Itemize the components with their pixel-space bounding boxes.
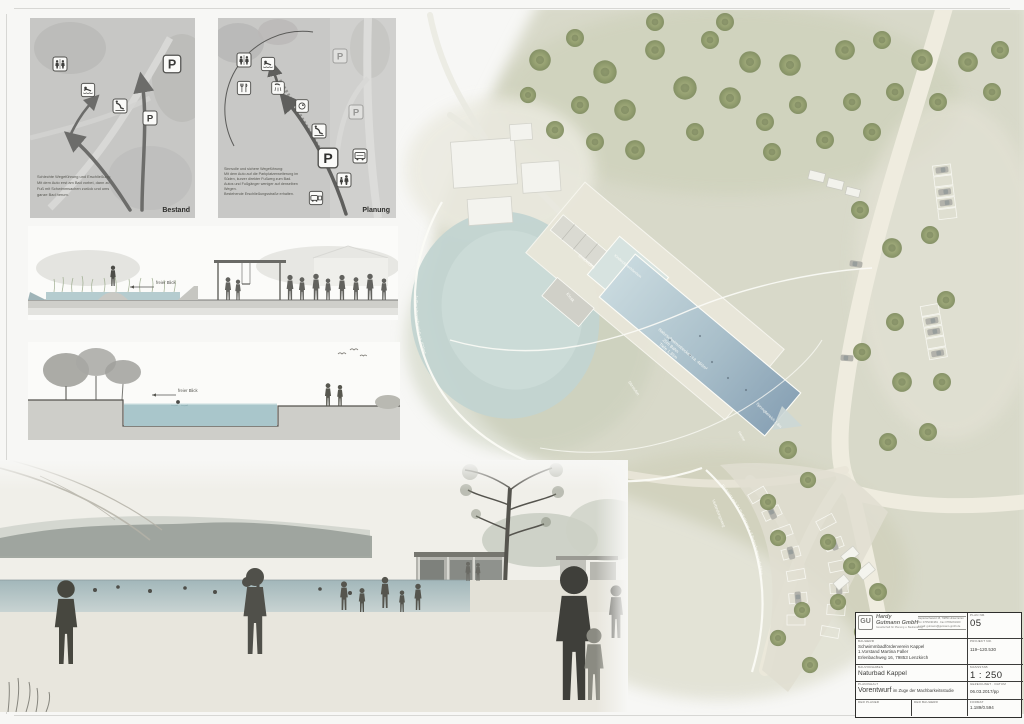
- icon-swimmer-sign: [261, 57, 274, 70]
- svg-text:Süden, kurzer direkter Fußweg: Süden, kurzer direkter Fußweg zum Bad.: [224, 177, 291, 181]
- icon-wc-sign: [53, 57, 67, 71]
- gezeichnet-cell: GEZEICHNET · DATUM 06.03.2017/pp: [968, 682, 1023, 700]
- firm-contact: Heptenschwand 15, 79856 Hinterzarten Tel…: [918, 616, 966, 630]
- section-drawing-2: freier Blick: [28, 342, 400, 440]
- icon-parking-sign: P: [163, 55, 181, 73]
- scale-value: 1 : 250: [970, 670, 1023, 682]
- beach-deck: [0, 612, 628, 712]
- svg-text:P: P: [168, 58, 176, 72]
- icon-slide-sign: [312, 124, 326, 138]
- icon-bus-sign: [353, 149, 367, 163]
- icon-slide-sign: [113, 99, 127, 113]
- icon-shower-sign: [272, 82, 285, 95]
- svg-text:freier Blick: freier Blick: [156, 280, 176, 285]
- icon-restaurant-sign: [237, 81, 250, 94]
- drawn-date: 06.03.2017/pp: [970, 689, 1023, 695]
- svg-text:Wegen.: Wegen.: [224, 187, 237, 191]
- bauherr-signature-cell: DER BAUHERR: [912, 700, 968, 716]
- format-cell: FORMAT 1.189/0.594: [968, 700, 1023, 716]
- plan-nr-cell: PLAN NR. 05: [968, 613, 1023, 639]
- svg-text:Mit dem Auto auf die Parkplatz: Mit dem Auto auf die Parkplatzerweiterun…: [224, 172, 298, 176]
- icon-pedestrians-sign: [337, 173, 351, 187]
- plan-sheet: { "colors": { "water": "#b9cedb", "tree_…: [0, 0, 1024, 724]
- svg-text:Schlechte Wegeführung und Ersc: Schlechte Wegeführung und Erschließung:: [37, 174, 111, 179]
- map-bestand: P P Schlechte Wegeführung und Erschließu…: [30, 18, 195, 218]
- title-block: GU Hardy Gutmann GmbH Gesellschaft für P…: [855, 612, 1022, 718]
- icon-play-sign: [296, 100, 309, 113]
- plan-content-rest: im Zuge der Machbarkeitsstudie: [893, 688, 954, 693]
- project-number: 119–120.530: [970, 647, 1023, 653]
- planer-signature-cell: DER PLANER: [856, 700, 912, 716]
- section-drawing-1: freier Blick: [28, 226, 398, 320]
- svg-text:freier Blick: freier Blick: [178, 388, 198, 393]
- svg-text:Fuß mit Schwimmsachen zurück u: Fuß mit Schwimmsachen zurück und ums: [37, 186, 109, 191]
- icon-car-sign: [309, 191, 322, 204]
- svg-text:Sinnvolle und sichere Wegeführ: Sinnvolle und sichere Wegeführung:: [224, 167, 283, 171]
- icon-parking-sign-main: P: [318, 148, 338, 168]
- svg-text:P: P: [323, 150, 332, 166]
- map-planung-title: Planung: [362, 207, 390, 214]
- svg-text:ganze Bad herum.: ganze Bad herum.: [37, 192, 69, 197]
- projekt-nr-cell: PROJEKT NR. 119–120.530: [968, 639, 1023, 665]
- svg-text:P: P: [337, 51, 344, 62]
- bauvorhaben-cell: BAUVORHABEN Naturbad Kappel: [856, 665, 968, 682]
- svg-text:Autos und Fußgänger weniger au: Autos und Fußgänger weniger auf denselbe…: [224, 182, 298, 186]
- map-planung-caption: Sinnvolle und sichere Wegeführung: Mit d…: [224, 167, 298, 196]
- plan-content-main: Vorentwurf: [858, 687, 891, 694]
- icon-parking-ghost-2: P: [349, 105, 363, 119]
- map-planung: P P P Sinnvolle und sichere Wegeführung:…: [218, 18, 396, 218]
- project-title: Naturbad Kappel: [858, 670, 967, 678]
- icon-parking-ghost-1: P: [333, 49, 347, 63]
- perspective-rendering: [0, 460, 628, 712]
- icon-swimmer-sign: [81, 83, 94, 96]
- svg-text:P: P: [353, 107, 360, 118]
- map-bestand-title: Bestand: [162, 207, 190, 214]
- plan-number: 05: [970, 618, 1023, 630]
- bauherr-cell: BAUHERR Schwimmbadförderverein Kappel 1.…: [856, 639, 968, 665]
- pool-water: [124, 404, 277, 426]
- massstab-cell: MASSSTAB 1 : 250: [968, 665, 1023, 682]
- svg-text:Bestehende Erschließungsstraße: Bestehende Erschließungsstraße erhalten.: [224, 192, 294, 196]
- planinhalt-cell: PLANINHALT Vorentwurf im Zuge der Machba…: [856, 682, 968, 700]
- firm-logo: GU: [858, 615, 873, 630]
- format-value: 1.189/0.594: [970, 705, 1023, 711]
- frame-top: [14, 8, 1010, 9]
- icon-parking-sign-2: P: [143, 111, 157, 125]
- firm-cell: GU Hardy Gutmann GmbH Gesellschaft für P…: [856, 613, 968, 639]
- svg-text:Mit dem Auto erst am Bad vorbe: Mit dem Auto erst am Bad vorbei, dann zu: [37, 180, 109, 185]
- icon-wc-sign: [237, 53, 251, 67]
- svg-text:P: P: [147, 113, 154, 124]
